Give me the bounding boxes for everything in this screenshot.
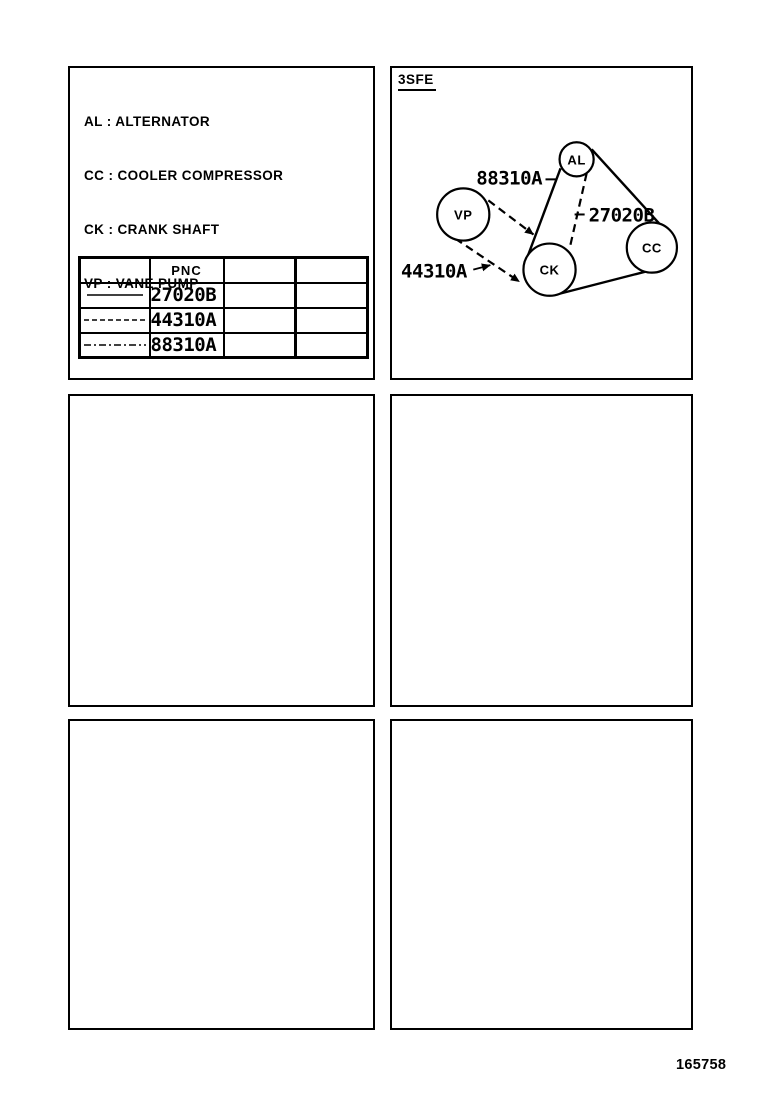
table-row: 44310A (80, 308, 368, 333)
pnc-header-cell: PNC (150, 258, 224, 283)
belt-diagram-panel: 3SFE AL VP CK CC (390, 66, 693, 380)
empty-cell (296, 308, 368, 333)
empty-cell (224, 333, 296, 358)
legend-line: CC : COOLER COMPRESSOR (84, 167, 283, 185)
dashed-line-sample (83, 315, 147, 325)
pnc-value-cell: 44310A (150, 308, 224, 333)
solid-line-sample (83, 290, 147, 300)
empty-header-cell (224, 258, 296, 283)
pulley-ck-label: CK (540, 263, 560, 278)
belt-line-dashed-vp-ck-upper (488, 200, 533, 234)
callout-44310a-leader-arrow (473, 265, 490, 270)
empty-panel-4 (390, 719, 693, 1030)
empty-cell (296, 283, 368, 308)
callout-88310a: 88310A (476, 167, 543, 189)
page-number: 165758 (676, 1057, 726, 1073)
legend-panel: AL : ALTERNATOR CC : COOLER COMPRESSOR C… (68, 66, 375, 380)
dash-dot-line-sample (83, 340, 147, 350)
line-style-cell (80, 333, 150, 358)
pnc-table-header-row: PNC (80, 258, 368, 283)
empty-cell (296, 333, 368, 358)
empty-panel-3 (68, 719, 375, 1030)
pulley-al-label: AL (567, 152, 585, 167)
callout-27020b: 27020B (589, 204, 655, 226)
callout-44310a: 44310A (401, 261, 468, 283)
belt-routing-diagram: AL VP CK CC 88310A 27020B 44310A (392, 68, 691, 378)
belt-line-dashed-al-ck (570, 173, 587, 248)
legend-line: AL : ALTERNATOR (84, 113, 283, 131)
line-style-cell (80, 283, 150, 308)
empty-cell (224, 283, 296, 308)
pnc-table: PNC 27020B 443 (78, 256, 369, 359)
pulley-cc-label: CC (642, 241, 662, 256)
empty-header-cell (296, 258, 368, 283)
pnc-value-cell: 88310A (150, 333, 224, 358)
line-style-header-cell (80, 258, 150, 283)
table-row: 88310A (80, 333, 368, 358)
table-row: 27020B (80, 283, 368, 308)
legend-line: CK : CRANK SHAFT (84, 221, 283, 239)
line-style-cell (80, 308, 150, 333)
pnc-value-cell: 27020B (150, 283, 224, 308)
empty-panel-1 (68, 394, 375, 707)
catalog-page: AL : ALTERNATOR CC : COOLER COMPRESSOR C… (0, 0, 760, 1112)
pulley-vp-label: VP (454, 207, 472, 222)
empty-cell (224, 308, 296, 333)
empty-panel-2 (390, 394, 693, 707)
